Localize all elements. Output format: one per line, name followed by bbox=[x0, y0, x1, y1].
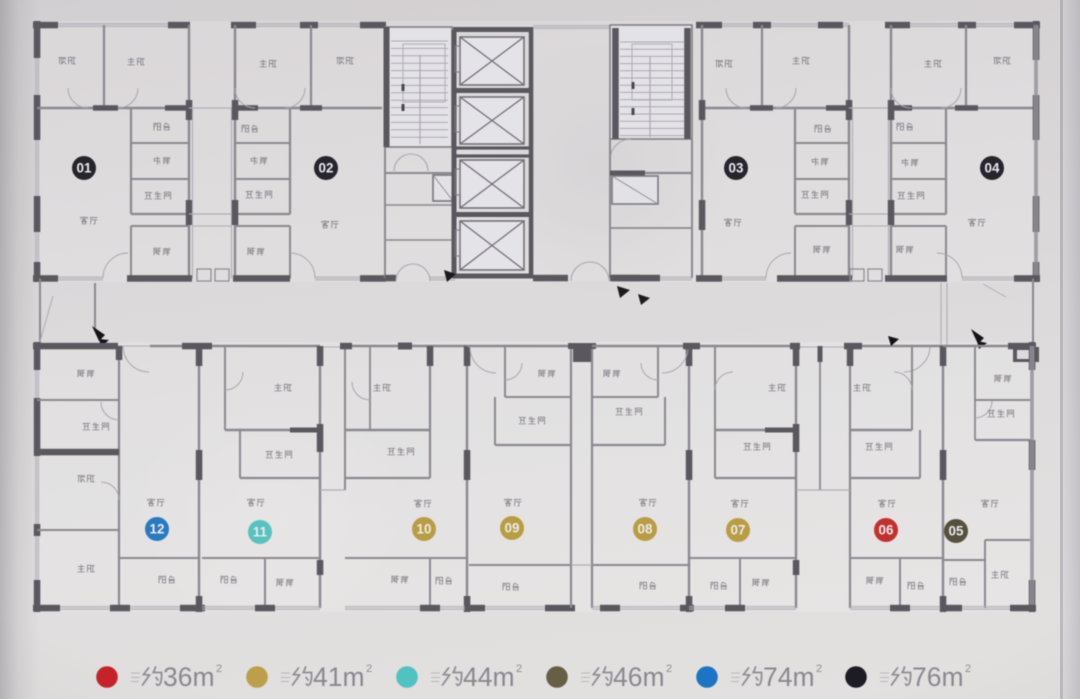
svg-text:2: 2 bbox=[516, 663, 522, 675]
svg-text:05: 05 bbox=[949, 524, 964, 539]
svg-text:03: 03 bbox=[729, 161, 744, 176]
svg-text:36m: 36m bbox=[163, 662, 215, 692]
svg-text:11: 11 bbox=[253, 525, 268, 540]
svg-text:2: 2 bbox=[216, 663, 222, 675]
svg-text:01: 01 bbox=[77, 161, 92, 176]
svg-text:12: 12 bbox=[150, 522, 165, 537]
svg-text:74m: 74m bbox=[763, 662, 815, 692]
svg-text:09: 09 bbox=[505, 521, 520, 536]
svg-text:02: 02 bbox=[319, 161, 334, 176]
svg-text:76m: 76m bbox=[912, 662, 964, 692]
svg-text:46m: 46m bbox=[613, 662, 665, 692]
svg-text:2: 2 bbox=[816, 663, 822, 675]
svg-text:2: 2 bbox=[666, 663, 672, 675]
svg-text:08: 08 bbox=[638, 522, 653, 537]
svg-text:07: 07 bbox=[731, 523, 746, 538]
svg-text:2: 2 bbox=[965, 663, 971, 675]
svg-text:04: 04 bbox=[985, 161, 1000, 176]
svg-text:41m: 41m bbox=[313, 662, 365, 692]
svg-text:06: 06 bbox=[879, 523, 894, 538]
svg-text:44m: 44m bbox=[463, 662, 515, 692]
svg-text:10: 10 bbox=[417, 522, 432, 537]
svg-text:2: 2 bbox=[366, 663, 372, 675]
